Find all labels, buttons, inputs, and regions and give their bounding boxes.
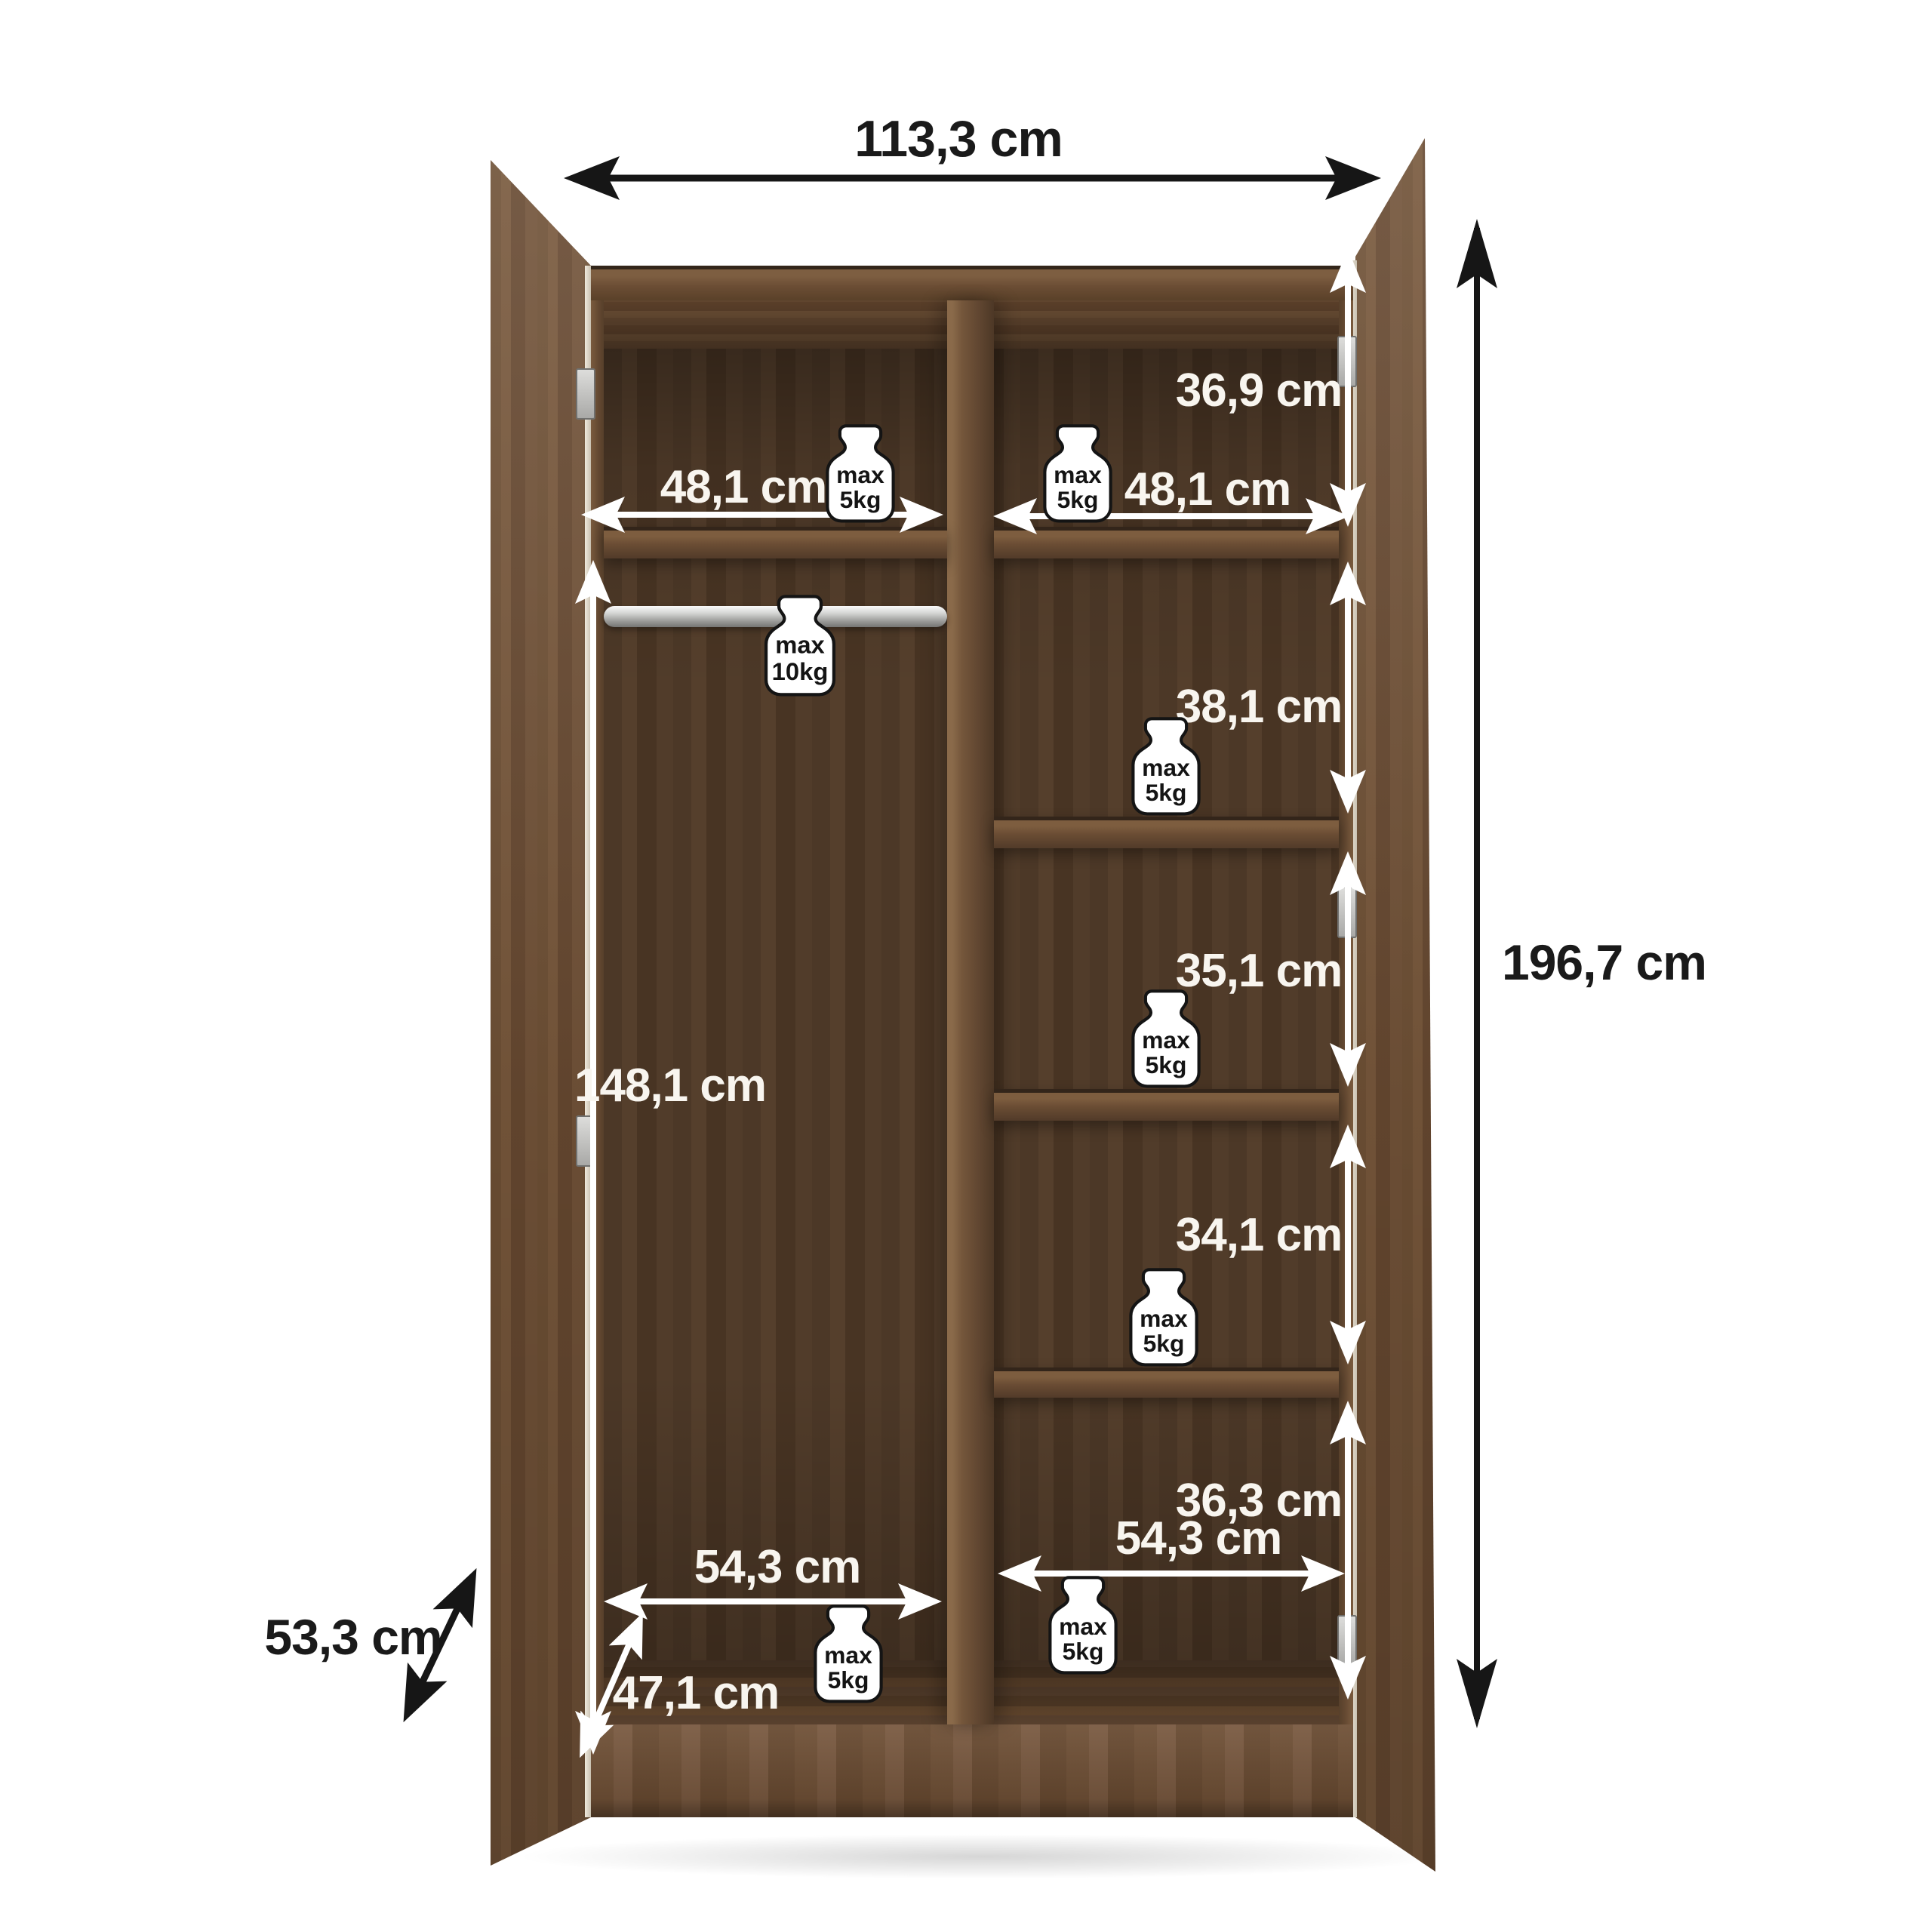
svg-text:max: max — [824, 1641, 872, 1669]
weight-badge-max-5kg: max 5kg — [1121, 717, 1211, 817]
left-side-panel — [591, 300, 604, 1724]
svg-text:max: max — [775, 631, 825, 659]
wardrobe-dimension-diagram: 113,3 cm 196,7 cm 53,3 cm 48,1 cm 48,1 c… — [0, 0, 1932, 1932]
svg-text:max: max — [1054, 461, 1102, 488]
svg-text:5kg: 5kg — [840, 486, 881, 513]
hinge-icon — [1337, 887, 1357, 938]
dim-label-bottom-left-width: 54,3 cm — [694, 1544, 861, 1591]
svg-text:5kg: 5kg — [1146, 1051, 1187, 1078]
right-shelf-3 — [994, 1089, 1339, 1121]
center-divider-panel — [947, 300, 994, 1724]
svg-text:5kg: 5kg — [1057, 486, 1099, 513]
svg-text:5kg: 5kg — [1063, 1638, 1104, 1665]
dim-label-right-shelf-width: 48,1 cm — [1124, 466, 1291, 513]
top-panel-front-edge — [591, 266, 1353, 300]
right-door-open — [1355, 138, 1435, 1874]
floor-shadow — [513, 1834, 1449, 1879]
hinge-icon — [1337, 1615, 1357, 1666]
svg-text:5kg: 5kg — [828, 1666, 869, 1694]
hinge-icon — [576, 368, 595, 420]
right-shelf-4 — [994, 1367, 1339, 1398]
dim-label-depth: 53,3 cm — [264, 1612, 441, 1662]
dim-label-inner-depth: 47,1 cm — [613, 1670, 780, 1717]
dim-label-overall-height: 196,7 cm — [1502, 937, 1706, 987]
weight-badge-max-5kg: max 5kg — [803, 1604, 894, 1704]
dim-arrow-overall-height — [1457, 219, 1497, 1728]
svg-text:max: max — [1142, 1026, 1190, 1054]
svg-text:10kg: 10kg — [772, 657, 829, 685]
weight-badge-max-10kg: max 10kg — [752, 595, 848, 697]
dim-label-bottom-right-width: 54,3 cm — [1115, 1515, 1282, 1562]
base-front-panel — [591, 1724, 1353, 1817]
weight-badge-max-5kg: max 5kg — [815, 424, 906, 524]
svg-text:max: max — [836, 461, 884, 488]
right-shelf-1 — [994, 527, 1339, 558]
weight-badge-max-5kg: max 5kg — [1032, 424, 1123, 524]
dim-label-overall-width: 113,3 cm — [854, 113, 1063, 165]
dim-label-comp4-height: 34,1 cm — [1176, 1212, 1343, 1259]
weight-badge-max-5kg: max 5kg — [1121, 989, 1211, 1089]
dim-label-comp1-height: 36,9 cm — [1176, 368, 1343, 414]
right-shelf-2 — [994, 817, 1339, 848]
svg-text:5kg: 5kg — [1146, 779, 1187, 806]
svg-text:max: max — [1059, 1613, 1107, 1640]
left-top-shelf — [604, 527, 947, 558]
weight-badge-max-5kg: max 5kg — [1118, 1268, 1209, 1367]
svg-text:5kg: 5kg — [1143, 1330, 1185, 1357]
dim-label-hanging-height: 148,1 cm — [574, 1063, 766, 1109]
svg-text:max: max — [1140, 1305, 1188, 1332]
svg-text:max: max — [1142, 754, 1190, 781]
left-door-edge — [585, 266, 591, 1817]
hinge-icon — [576, 1115, 595, 1167]
dim-label-left-shelf-width: 48,1 cm — [660, 464, 827, 511]
weight-badge-max-5kg: max 5kg — [1038, 1576, 1128, 1675]
dim-label-comp3-height: 35,1 cm — [1176, 948, 1343, 995]
